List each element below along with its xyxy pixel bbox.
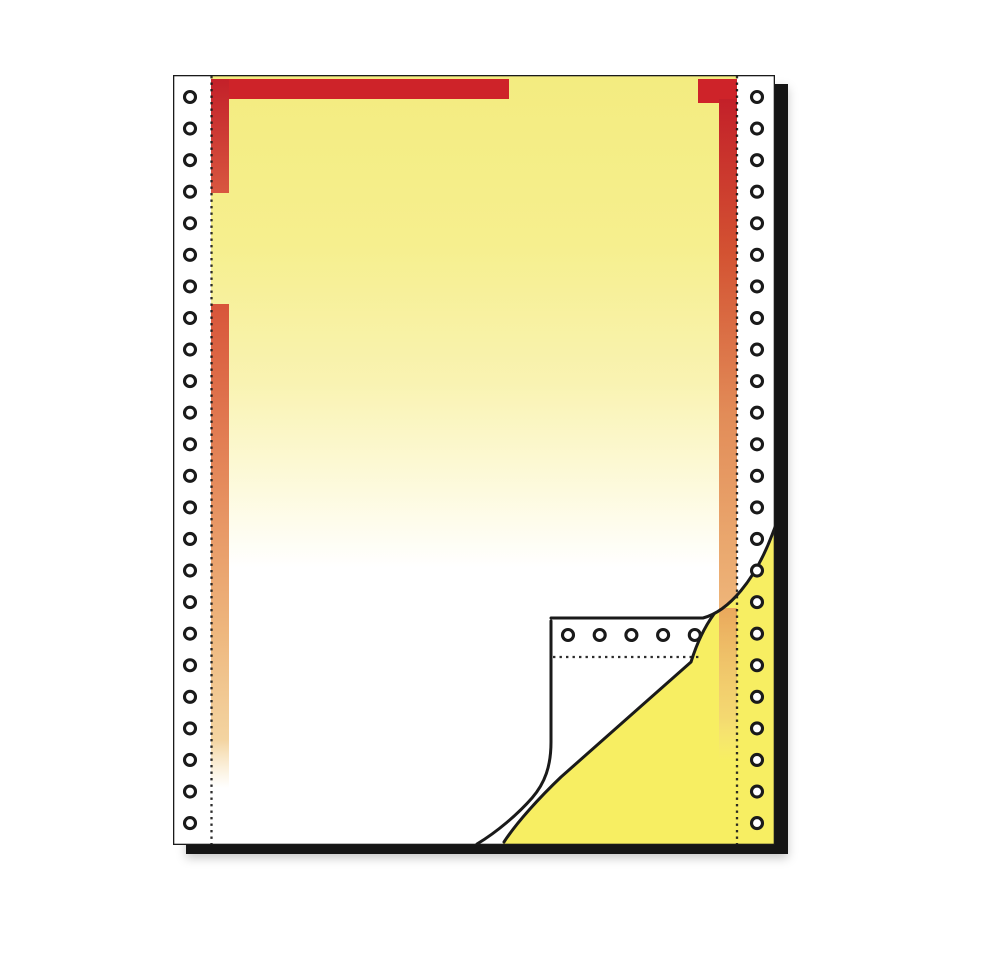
punched-hole xyxy=(185,344,196,355)
punched-hole xyxy=(752,92,763,103)
punched-hole xyxy=(185,123,196,134)
punched-hole xyxy=(563,630,574,641)
punched-hole xyxy=(752,660,763,671)
punched-hole xyxy=(752,439,763,450)
punched-hole xyxy=(752,470,763,481)
continuous-form-paper-product-image xyxy=(0,0,1002,953)
punched-hole xyxy=(752,123,763,134)
punched-hole xyxy=(185,281,196,292)
punched-hole xyxy=(185,470,196,481)
red-side-bar-left-top xyxy=(211,79,229,193)
punched-hole xyxy=(185,407,196,418)
punched-hole xyxy=(185,249,196,260)
punched-hole xyxy=(752,186,763,197)
punched-hole xyxy=(185,533,196,544)
punched-hole xyxy=(752,312,763,323)
punched-hole xyxy=(626,630,637,641)
punched-hole xyxy=(185,502,196,513)
punched-hole xyxy=(185,312,196,323)
punched-hole xyxy=(752,218,763,229)
punched-hole xyxy=(185,660,196,671)
orange-side-bar-right xyxy=(719,99,737,609)
punched-hole xyxy=(752,533,763,544)
punched-hole xyxy=(185,565,196,576)
punched-hole xyxy=(594,630,605,641)
punched-hole xyxy=(658,630,669,641)
punched-hole xyxy=(752,691,763,702)
punched-hole xyxy=(752,818,763,829)
punched-hole xyxy=(185,92,196,103)
punched-hole xyxy=(752,597,763,608)
punched-hole xyxy=(185,818,196,829)
orange-side-bar-left xyxy=(211,304,229,788)
punched-hole xyxy=(752,281,763,292)
punched-hole xyxy=(185,439,196,450)
punched-hole xyxy=(752,628,763,639)
product-image-stage xyxy=(0,0,1002,953)
punched-hole xyxy=(752,155,763,166)
punched-hole xyxy=(185,628,196,639)
punched-hole xyxy=(752,344,763,355)
red-header-bar xyxy=(212,79,509,99)
punched-hole xyxy=(752,407,763,418)
punched-hole xyxy=(185,691,196,702)
punched-hole xyxy=(752,723,763,734)
punched-hole xyxy=(185,155,196,166)
punched-hole xyxy=(185,376,196,387)
copy-sheet-faded-bar xyxy=(719,608,737,760)
punched-hole xyxy=(185,186,196,197)
top-sheet xyxy=(173,75,780,846)
punched-hole xyxy=(752,249,763,260)
punched-hole xyxy=(689,630,700,641)
punched-hole xyxy=(752,565,763,576)
punched-hole xyxy=(752,376,763,387)
punched-hole xyxy=(185,786,196,797)
punched-hole xyxy=(752,786,763,797)
punched-hole xyxy=(185,218,196,229)
punched-hole xyxy=(752,502,763,513)
punched-hole xyxy=(185,597,196,608)
punched-hole xyxy=(185,723,196,734)
punched-hole xyxy=(752,754,763,765)
punched-hole xyxy=(185,754,196,765)
